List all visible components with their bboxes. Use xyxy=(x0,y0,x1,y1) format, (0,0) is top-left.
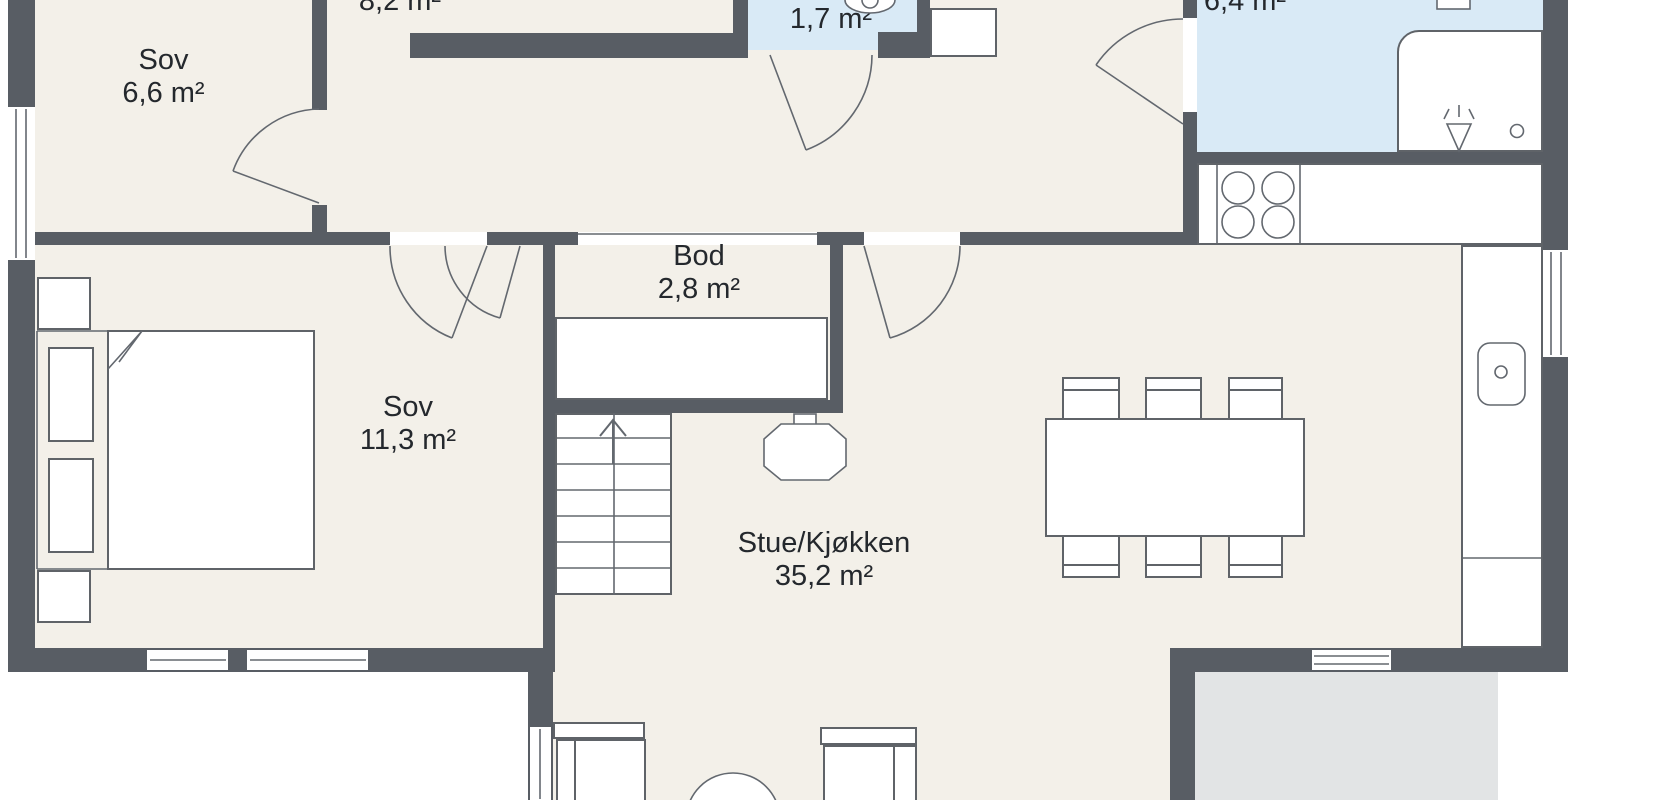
dining-table xyxy=(1045,418,1305,537)
wall-segment xyxy=(487,232,578,245)
kitchen-counter-top xyxy=(1197,163,1543,245)
wall-segment xyxy=(830,245,843,413)
window-sidelight xyxy=(930,8,997,57)
wall-segment xyxy=(327,232,390,245)
bod-wardrobe xyxy=(555,317,828,400)
armchair-back xyxy=(820,727,917,745)
room-name: Sov xyxy=(308,391,508,424)
wall-segment xyxy=(1170,672,1195,800)
room-label-hall-partial: 8,2 m² xyxy=(325,0,475,18)
room-label-bath-partial: 6,4 m² xyxy=(1170,0,1320,18)
wall-segment xyxy=(917,0,930,58)
room-area: 35,2 m² xyxy=(699,560,949,593)
room-label-stue: Stue/Kjøkken 35,2 m² xyxy=(699,527,949,593)
wall-segment xyxy=(1543,0,1568,250)
wall-segment xyxy=(1183,112,1197,245)
room-name: Bod xyxy=(599,240,799,273)
wall-segment xyxy=(543,413,555,650)
wall-segment xyxy=(1183,152,1543,163)
room-area: 6,6 m² xyxy=(61,77,266,110)
wall-segment xyxy=(35,232,312,245)
shower-cabin xyxy=(1397,30,1543,152)
armchair-back xyxy=(553,722,645,739)
bed-pillow xyxy=(48,458,94,553)
room-label-sov1: Sov 6,6 m² xyxy=(61,44,266,110)
room-area: 8,2 m² xyxy=(325,0,475,18)
dining-chair xyxy=(1062,535,1120,578)
room-label-sov2: Sov 11,3 m² xyxy=(308,391,508,457)
window xyxy=(1545,250,1566,357)
dining-chair xyxy=(1228,377,1283,420)
wall-segment xyxy=(817,232,864,245)
window xyxy=(147,650,228,670)
armchair-seat xyxy=(556,739,646,800)
wall-segment xyxy=(1543,357,1568,672)
wall-segment xyxy=(8,0,35,648)
window xyxy=(247,650,368,670)
dining-chair xyxy=(1228,535,1283,578)
wall-segment xyxy=(410,33,748,58)
room-area: 1,7 m² xyxy=(745,3,917,36)
dining-chair xyxy=(1145,377,1202,420)
armchair-seat xyxy=(823,745,917,800)
room-label-wc: 1,7 m² xyxy=(745,3,917,36)
staircase xyxy=(555,413,672,595)
window xyxy=(530,727,551,800)
dining-chair xyxy=(1145,535,1202,578)
wall-segment xyxy=(312,205,327,245)
terrace xyxy=(1195,672,1498,800)
nightstand xyxy=(37,570,91,623)
room-name: Sov xyxy=(61,44,266,77)
room-area: 11,3 m² xyxy=(308,424,508,457)
kitchen-counter-right xyxy=(1461,245,1543,648)
floor-plan: Sov 6,6 m² 8,2 m² 1,7 m² 6,4 m² Bod 2,8 … xyxy=(0,0,1670,800)
bed-blanket xyxy=(107,330,315,570)
bed-pillow xyxy=(48,347,94,442)
room-area: 6,4 m² xyxy=(1170,0,1320,18)
room-area: 2,8 m² xyxy=(599,273,799,306)
room-name: Stue/Kjøkken xyxy=(699,527,949,560)
room-label-bod: Bod 2,8 m² xyxy=(599,240,799,306)
wall-segment xyxy=(543,245,555,413)
wall-segment xyxy=(543,400,843,413)
dining-chair xyxy=(1062,377,1120,420)
nightstand xyxy=(37,277,91,330)
sliding-door xyxy=(1312,650,1391,670)
window xyxy=(8,107,35,260)
wall-segment xyxy=(960,232,1183,245)
